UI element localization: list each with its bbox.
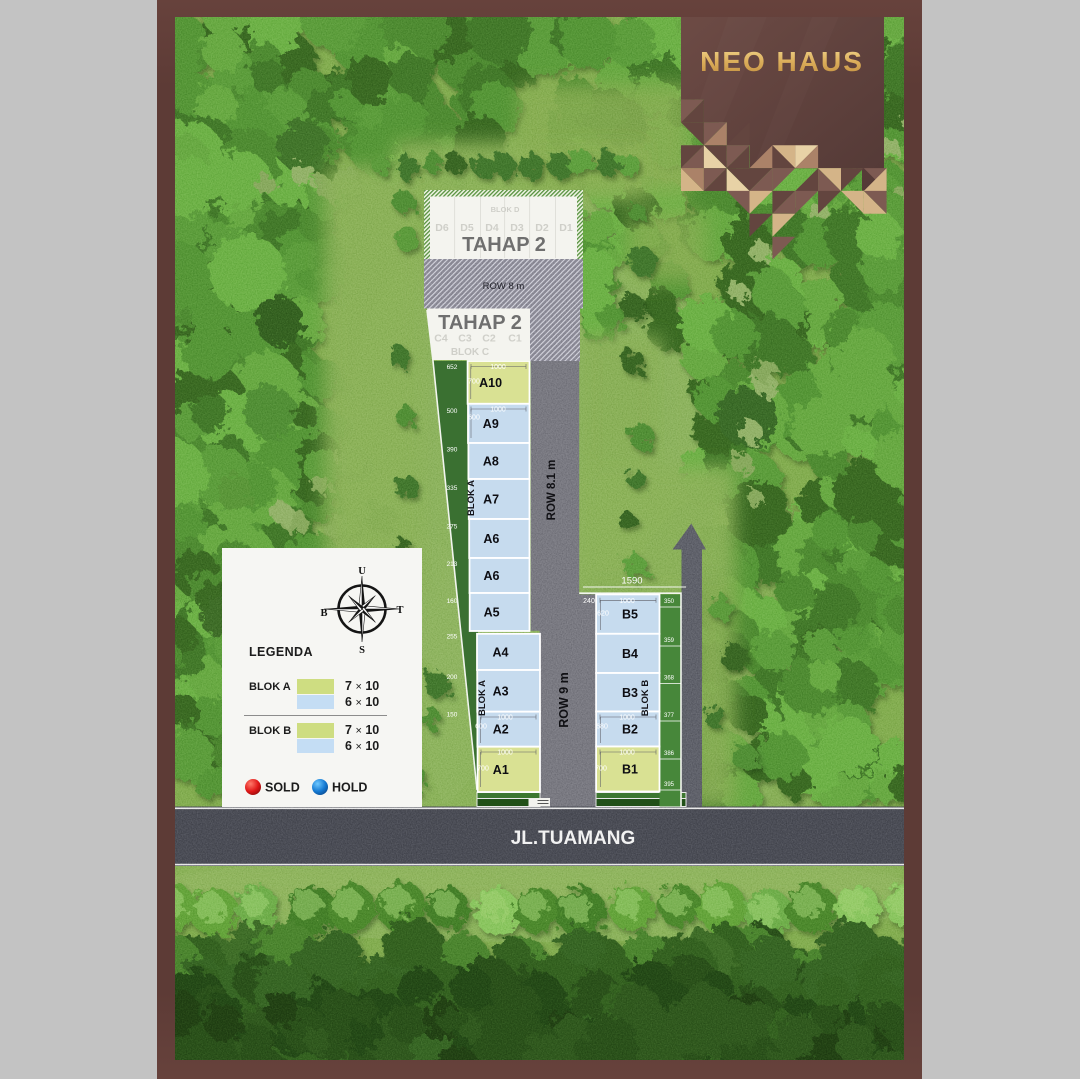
- svg-text:A9: A9: [483, 417, 499, 431]
- svg-text:1000: 1000: [490, 407, 506, 414]
- svg-text:A2: A2: [493, 723, 509, 737]
- svg-text:HOLD: HOLD: [332, 781, 367, 795]
- svg-text:D1: D1: [559, 222, 573, 234]
- svg-text:BLOK B: BLOK B: [640, 680, 651, 717]
- svg-text:B4: B4: [622, 647, 638, 661]
- svg-text:BLOK A: BLOK A: [477, 680, 488, 716]
- svg-text:JL.TUAMANG: JL.TUAMANG: [511, 828, 636, 849]
- svg-text:350: 350: [664, 599, 675, 605]
- svg-text:D6: D6: [435, 222, 449, 234]
- svg-text:C4: C4: [434, 333, 448, 345]
- svg-text:160: 160: [447, 598, 458, 605]
- svg-text:600: 600: [475, 724, 487, 731]
- svg-text:1000: 1000: [619, 715, 635, 722]
- svg-text:S: S: [359, 645, 365, 654]
- svg-text:ROW 8.1 m: ROW 8.1 m: [546, 460, 558, 521]
- svg-text:620: 620: [597, 611, 609, 618]
- svg-text:B: B: [320, 608, 327, 619]
- svg-text:BLOK A: BLOK A: [466, 480, 477, 516]
- svg-text:1000: 1000: [497, 715, 513, 722]
- svg-text:700: 700: [595, 766, 607, 773]
- svg-text:359: 359: [664, 638, 675, 644]
- svg-text:500: 500: [447, 408, 458, 415]
- svg-text:1000: 1000: [619, 598, 635, 605]
- svg-text:BLOK C: BLOK C: [451, 347, 489, 358]
- svg-text:213: 213: [447, 561, 458, 568]
- svg-text:C2: C2: [482, 333, 496, 345]
- svg-text:A3: A3: [493, 684, 509, 698]
- svg-text:680: 680: [596, 724, 608, 731]
- svg-text:BLOK D: BLOK D: [491, 205, 520, 214]
- svg-text:377: 377: [664, 713, 675, 719]
- svg-text:700: 700: [468, 379, 480, 386]
- svg-text:1000: 1000: [490, 364, 506, 371]
- svg-text:B2: B2: [622, 723, 638, 737]
- svg-text:D4: D4: [485, 222, 499, 234]
- svg-text:652: 652: [447, 364, 458, 371]
- svg-text:T: T: [396, 605, 403, 616]
- svg-text:150: 150: [447, 712, 458, 719]
- svg-text:A1: A1: [493, 763, 509, 777]
- svg-text:C1: C1: [508, 333, 522, 345]
- svg-text:U: U: [358, 566, 366, 577]
- svg-text:368: 368: [664, 676, 675, 682]
- svg-text:TAHAP 2: TAHAP 2: [462, 234, 546, 256]
- svg-text:1000: 1000: [619, 750, 635, 757]
- svg-text:ROW 8 m: ROW 8 m: [483, 281, 525, 292]
- svg-text:1000: 1000: [497, 750, 513, 757]
- svg-text:NEO HAUS: NEO HAUS: [700, 46, 864, 77]
- svg-text:A6: A6: [484, 569, 500, 583]
- svg-text:1590: 1590: [621, 576, 642, 587]
- svg-text:A8: A8: [483, 455, 499, 469]
- svg-text:D3: D3: [510, 222, 524, 234]
- svg-text:A5: A5: [484, 606, 500, 620]
- svg-text:275: 275: [447, 524, 458, 531]
- svg-text:390: 390: [447, 447, 458, 454]
- svg-text:A7: A7: [483, 493, 499, 507]
- svg-text:240: 240: [583, 598, 595, 605]
- svg-text:255: 255: [447, 634, 458, 641]
- svg-text:A6: A6: [483, 532, 499, 546]
- svg-text:B1: B1: [622, 763, 638, 777]
- svg-text:B3: B3: [622, 686, 638, 700]
- svg-text:D2: D2: [535, 222, 549, 234]
- svg-text:C3: C3: [458, 333, 472, 345]
- svg-text:335: 335: [447, 485, 458, 492]
- svg-text:700: 700: [477, 766, 489, 773]
- svg-text:ROW 9 m: ROW 9 m: [557, 672, 571, 728]
- svg-text:600: 600: [468, 415, 480, 422]
- svg-text:TAHAP 2: TAHAP 2: [438, 312, 522, 334]
- svg-text:SOLD: SOLD: [265, 781, 300, 795]
- svg-text:395: 395: [664, 782, 675, 788]
- svg-text:D5: D5: [460, 222, 474, 234]
- svg-text:200: 200: [447, 674, 458, 681]
- svg-text:B5: B5: [622, 608, 638, 622]
- svg-text:A10: A10: [479, 376, 502, 390]
- svg-text:A4: A4: [493, 645, 509, 659]
- svg-text:386: 386: [664, 751, 675, 757]
